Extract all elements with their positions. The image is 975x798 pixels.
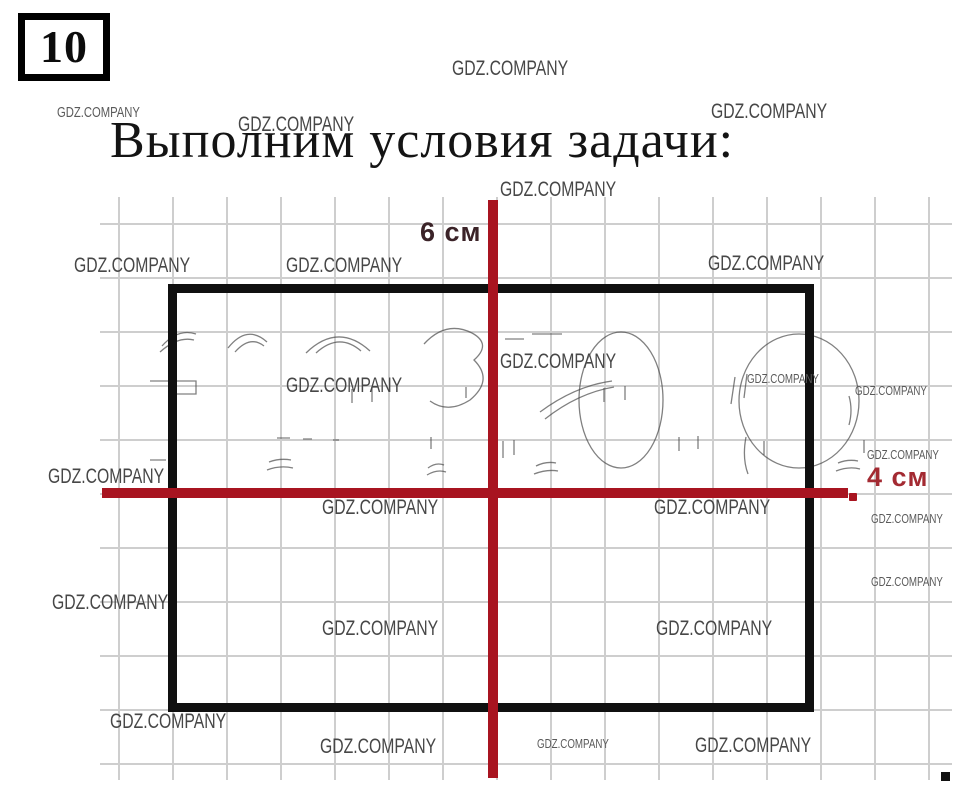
page-title: Выполним условия задачи:: [110, 115, 734, 167]
horizontal-line-label: 4 см: [867, 464, 929, 491]
watermark: GDZ.COMPANY: [452, 56, 568, 82]
problem-number: 10: [40, 24, 88, 70]
vertical-line-label: 6 см: [420, 219, 482, 246]
cursor-square: [941, 772, 950, 781]
problem-number-badge: 10: [18, 13, 110, 81]
horizontal-red-line: [102, 488, 848, 498]
line-end-dot: [849, 493, 857, 501]
page: 10 Выполним условия задачи: 6 см 4 см GD…: [0, 0, 975, 798]
